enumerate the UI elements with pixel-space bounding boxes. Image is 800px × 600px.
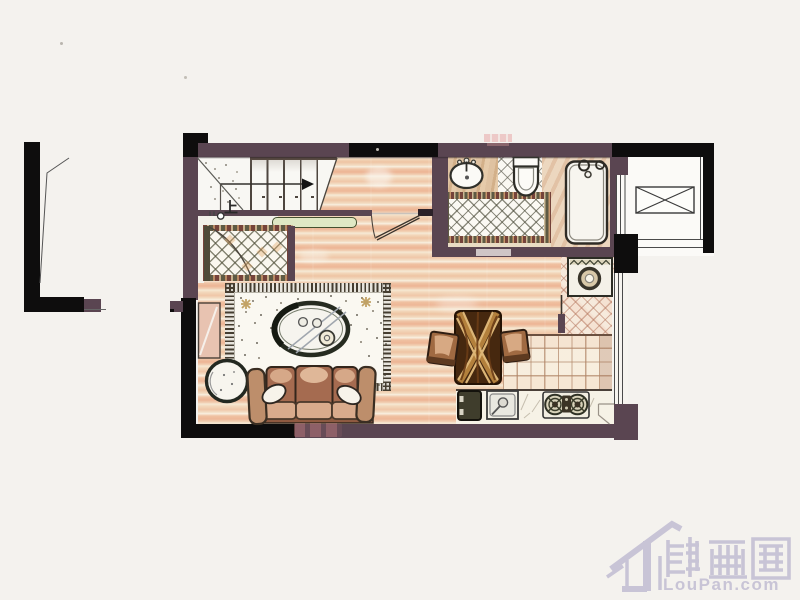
svg-text:LouPan.com: LouPan.com (663, 575, 780, 594)
